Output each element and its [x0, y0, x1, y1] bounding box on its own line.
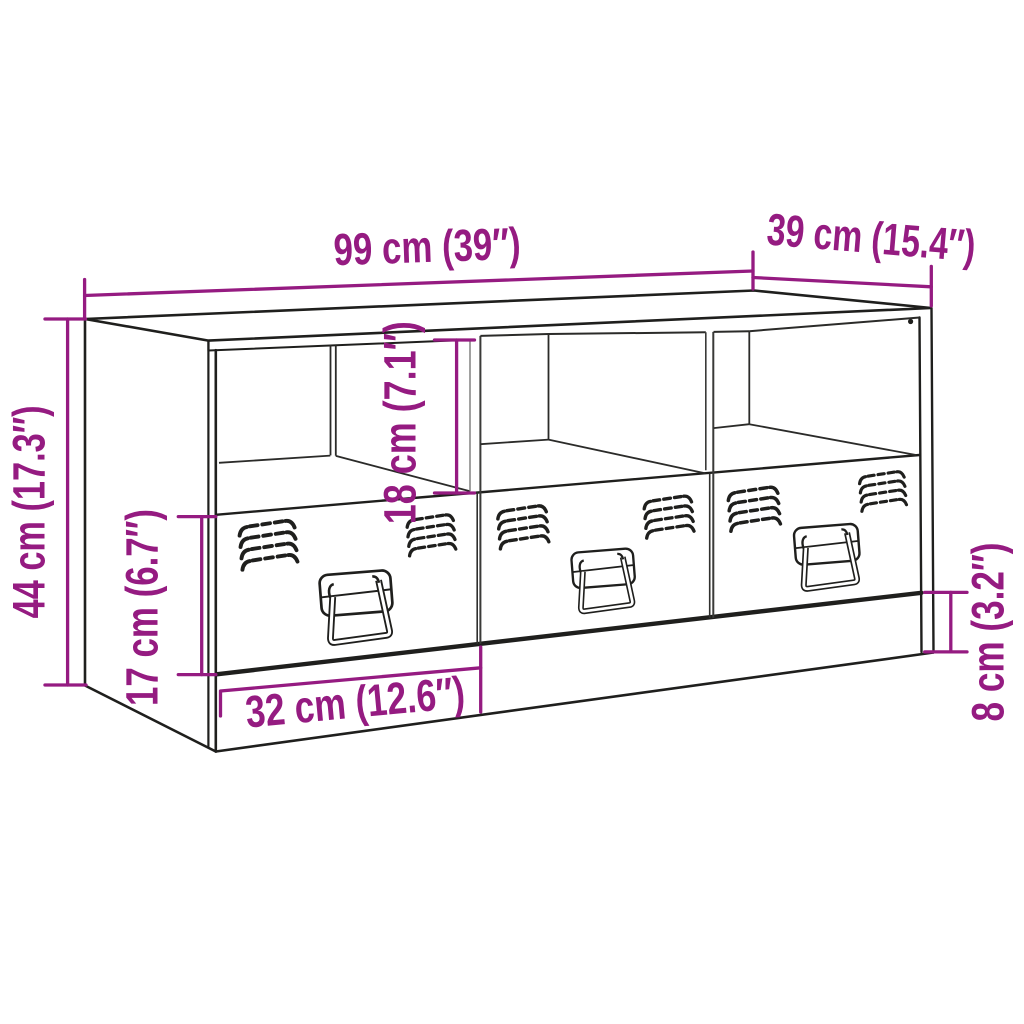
svg-text:17 cm (6.7″): 17 cm (6.7″) — [116, 509, 167, 706]
svg-text:44 cm (17.3″): 44 cm (17.3″) — [4, 405, 55, 618]
svg-text:99 cm (39″): 99 cm (39″) — [333, 218, 522, 275]
svg-text:8 cm (3.2″): 8 cm (3.2″) — [963, 543, 1014, 722]
svg-text:18 cm (7.1″): 18 cm (7.1″) — [374, 321, 425, 524]
